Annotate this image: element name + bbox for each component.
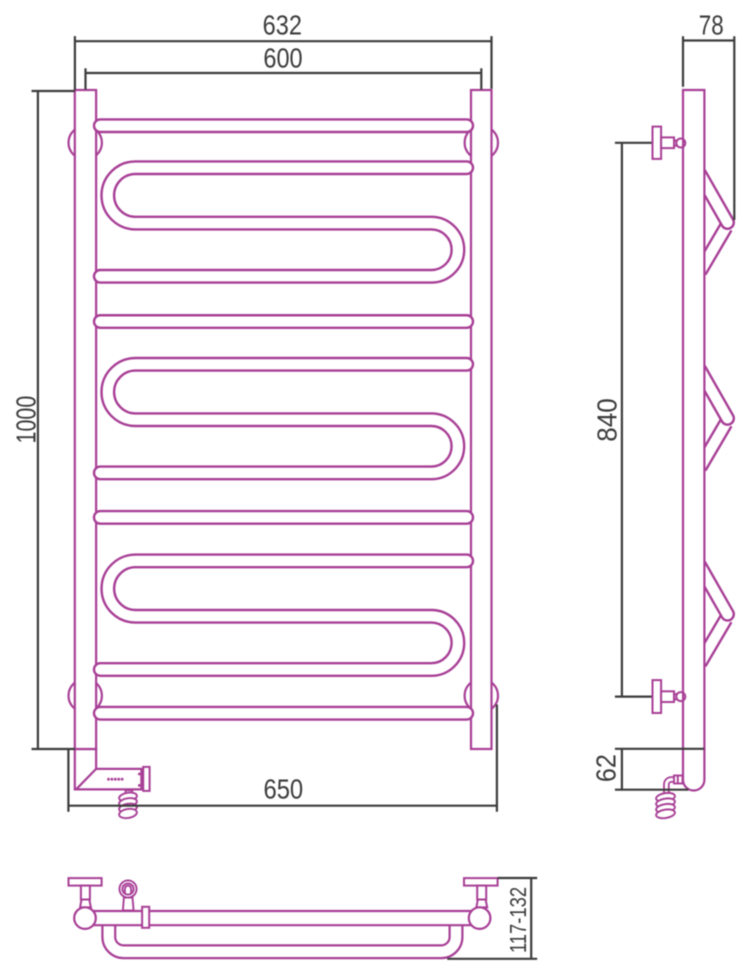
svg-text:650: 650 xyxy=(263,773,303,805)
svg-text:840: 840 xyxy=(592,398,623,441)
svg-text:62: 62 xyxy=(590,754,622,782)
svg-text:117-132: 117-132 xyxy=(506,887,531,953)
svg-text:600: 600 xyxy=(263,44,302,74)
svg-text:1000: 1000 xyxy=(11,396,42,444)
svg-text:78: 78 xyxy=(699,10,724,41)
svg-text:632: 632 xyxy=(263,11,302,41)
